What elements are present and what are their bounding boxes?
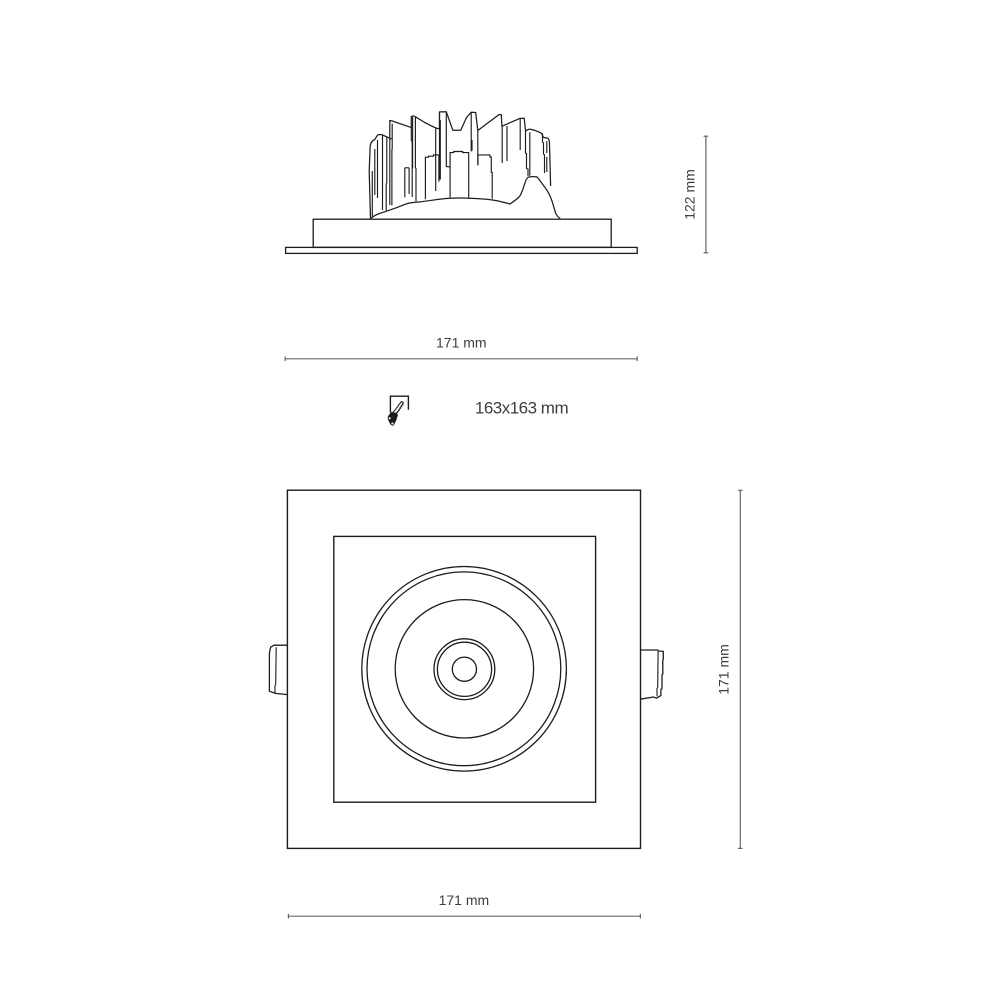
svg-text:171 mm: 171 mm: [436, 334, 487, 350]
svg-text:122 mm: 122 mm: [682, 169, 698, 220]
svg-text:163x163 mm: 163x163 mm: [475, 398, 569, 417]
svg-text:171 mm: 171 mm: [716, 644, 732, 695]
svg-text:171 mm: 171 mm: [439, 892, 490, 908]
